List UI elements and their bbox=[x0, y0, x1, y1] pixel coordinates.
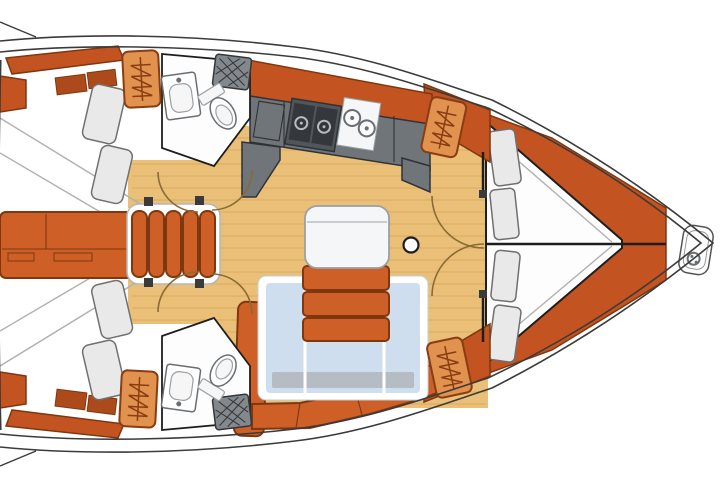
twin-sinks-icon bbox=[337, 98, 381, 151]
head-sink-icon bbox=[161, 72, 201, 120]
door-post bbox=[144, 278, 153, 287]
table-fiddle-rail bbox=[272, 372, 414, 388]
yacht-floor-plan: sailboat-interior-floor-plan bbox=[0, 0, 720, 480]
door-post bbox=[479, 290, 487, 298]
hull-shelf-corner bbox=[0, 372, 26, 408]
step-tread bbox=[200, 211, 215, 277]
door-post bbox=[195, 279, 204, 288]
forward-cabin bbox=[486, 114, 715, 374]
table-drawer bbox=[303, 292, 389, 316]
shelf-cubby bbox=[55, 74, 87, 95]
stove-burners-icon bbox=[285, 98, 342, 151]
table-drawer bbox=[303, 266, 389, 290]
door-post bbox=[144, 197, 153, 206]
engine-compartment bbox=[0, 212, 132, 278]
step-tread bbox=[166, 211, 181, 277]
head-sink-icon bbox=[161, 364, 201, 412]
hull-shelf-band bbox=[6, 410, 124, 438]
deck-hatch-aft-port bbox=[119, 370, 158, 428]
door-post bbox=[479, 190, 487, 198]
sink-basin bbox=[168, 83, 194, 114]
sink-basin bbox=[168, 371, 194, 402]
floor-plan-canvas: sailboat-interior-floor-plan bbox=[0, 0, 720, 480]
deck-hatch-aft-starboard bbox=[122, 50, 161, 108]
step-tread bbox=[132, 211, 147, 277]
pillow bbox=[490, 250, 520, 302]
mast-post bbox=[404, 238, 419, 253]
anchor-locker bbox=[677, 224, 714, 276]
hull-shelf-corner bbox=[0, 76, 26, 112]
table-drawer bbox=[303, 318, 389, 341]
salon-bench bbox=[305, 206, 389, 268]
pillow bbox=[81, 83, 127, 145]
anchor-locker-lid bbox=[677, 224, 714, 276]
door-post bbox=[195, 196, 204, 205]
step-tread bbox=[149, 211, 164, 277]
pillow bbox=[489, 188, 519, 240]
step-tread bbox=[183, 211, 198, 277]
shelf-cubby bbox=[55, 389, 87, 410]
